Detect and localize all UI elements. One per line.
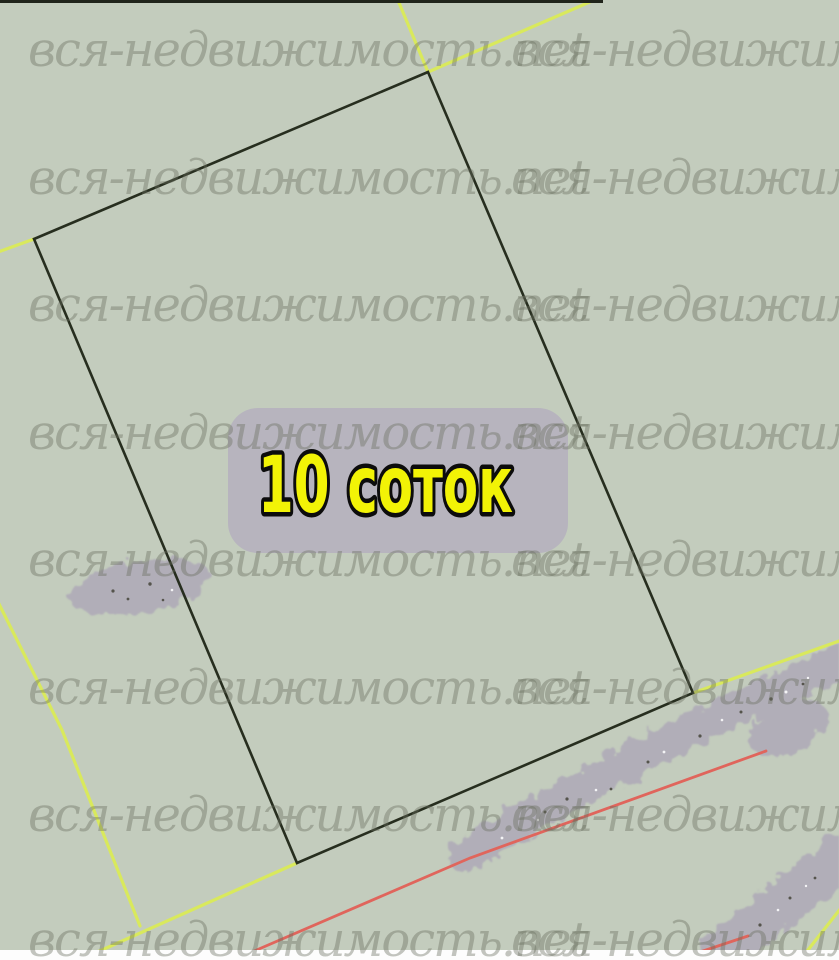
cadastral-line-southwest (0, 602, 140, 926)
terrain-smudges (65, 549, 839, 956)
bottom-white-strip (0, 950, 839, 960)
dirt-road-band-bottom-right (720, 856, 839, 956)
cadastral-line-top-right (428, 0, 599, 72)
top-edge-strip (0, 0, 603, 3)
smudge-speckles-light (171, 589, 810, 912)
dirt-road-band-main (465, 660, 839, 856)
cadastral-map-canvas: 10 соток (0, 0, 839, 960)
map-screenshot: 10 соток вся-недвижимость.net вся-недвиж… (0, 0, 839, 960)
area-label-text: 10 соток (258, 441, 513, 531)
cadastral-line-south (84, 863, 297, 958)
cadastral-line-west (0, 239, 34, 252)
cadastral-line-top-left (397, 0, 428, 72)
smudge-speckles-dark (111, 582, 816, 926)
